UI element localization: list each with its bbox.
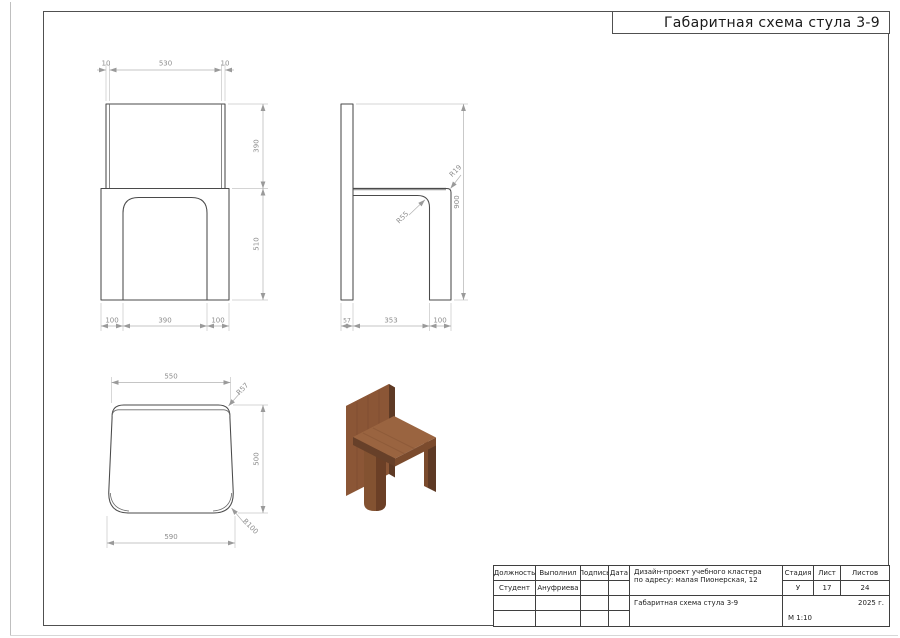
tb-header-stage: Стадия	[783, 566, 814, 581]
tb-empty-cell	[494, 611, 536, 626]
sheet-title: Габаритная схема стула 3-9	[664, 15, 880, 31]
tb-scale: М 1:10	[788, 614, 812, 622]
title-block: Должность Выполнил Подпись Дата Студент …	[493, 565, 890, 627]
dim-side-outer-radius: R19	[448, 163, 463, 178]
dim-top-front-corner-radius: R100	[241, 517, 260, 536]
dim-front-leg-right: 100	[211, 317, 224, 325]
tb-empty-cell	[536, 596, 581, 611]
tb-sheets-value: 24	[841, 581, 889, 596]
tb-sheet-value: 17	[814, 581, 841, 596]
tb-header-sheet: Лист	[814, 566, 841, 581]
tb-empty-cell	[581, 581, 609, 596]
side-view: R55 R19 900 57 353 100	[341, 104, 468, 331]
tb-header-date: Дата	[609, 566, 630, 581]
tb-row-executor: Ануфриева	[536, 581, 581, 596]
drawing-sheet: 10 530 10 390 510 100 390 100	[0, 0, 900, 638]
tb-project-cell: Дизайн-проект учебного кластера по адрес…	[630, 566, 783, 596]
dim-front-backrest-height: 390	[253, 139, 261, 152]
dim-front-panel-thickness-right: 10	[221, 60, 230, 68]
dim-front-seat-height: 510	[253, 237, 261, 250]
tb-project-line1: Дизайн-проект учебного кластера	[634, 568, 762, 576]
tb-empty-cell	[581, 596, 609, 611]
tb-empty-cell	[609, 596, 630, 611]
tb-project-line2: по адресу: малая Пионерская, 12	[634, 576, 762, 584]
dim-top-back-width: 550	[164, 373, 177, 381]
tb-year: 2025 г.	[858, 599, 884, 607]
dim-side-inner-radius: R55	[395, 210, 410, 225]
tb-header-sheets: Листов	[841, 566, 889, 581]
sheet-title-box: Габаритная схема стула 3-9	[612, 11, 890, 34]
tb-empty-cell	[609, 581, 630, 596]
tb-header-position: Должность	[494, 566, 536, 581]
dim-top-back-corner-radius: R57	[235, 381, 250, 396]
dim-side-back-thickness: 57	[343, 318, 351, 325]
dim-front-leg-left: 100	[105, 317, 118, 325]
tb-header-executor: Выполнил	[536, 566, 581, 581]
tb-empty-cell	[609, 611, 630, 626]
tb-row-position: Студент	[494, 581, 536, 596]
dim-front-panel-thickness-left: 10	[102, 60, 111, 68]
top-view: 550 R57 500 590 R100	[107, 373, 268, 549]
dim-side-span: 353	[384, 317, 397, 325]
tb-meta-cell: 2025 г. М 1:10	[783, 596, 889, 626]
tb-stage-value: У	[783, 581, 814, 596]
tb-empty-cell	[536, 611, 581, 626]
drawing-canvas: 10 530 10 390 510 100 390 100	[0, 0, 900, 638]
dim-front-panel-width: 530	[159, 60, 172, 68]
chair-3d-render	[346, 384, 436, 511]
front-view: 10 530 10 390 510 100 390 100	[97, 60, 268, 332]
tb-empty-cell	[494, 596, 536, 611]
chair-right-leg-side	[428, 442, 436, 493]
dim-front-opening: 390	[158, 317, 171, 325]
tb-header-signature: Подпись	[581, 566, 609, 581]
dim-side-leg-depth: 100	[433, 317, 446, 325]
tb-doc-title: Габаритная схема стула 3-9	[630, 596, 783, 626]
dim-side-total-height: 900	[453, 195, 461, 208]
dim-top-seat-depth: 500	[253, 452, 261, 465]
dim-top-front-width: 590	[164, 533, 177, 541]
tb-empty-cell	[581, 611, 609, 626]
